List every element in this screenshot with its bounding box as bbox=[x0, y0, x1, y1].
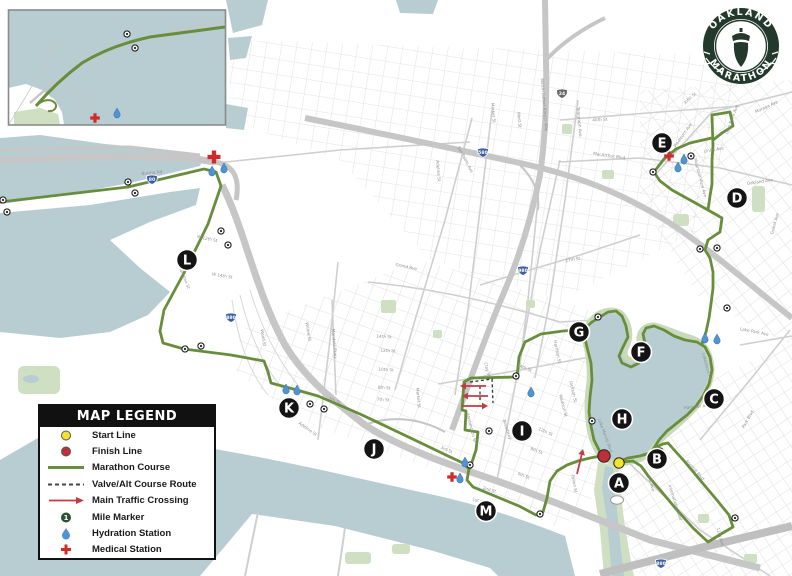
course-point-marker-D: D bbox=[727, 188, 748, 209]
mile-marker bbox=[589, 418, 595, 424]
street-label: 12th St bbox=[380, 348, 396, 354]
legend-title: MAP LEGEND bbox=[40, 406, 214, 427]
street-label: 14th St bbox=[376, 334, 392, 340]
mile-marker bbox=[732, 515, 738, 521]
mile-marker bbox=[4, 209, 10, 215]
mile-marker-dot bbox=[699, 248, 701, 250]
letter-label: K bbox=[284, 401, 295, 416]
mile-marker-dot bbox=[126, 33, 128, 35]
letter-label: M bbox=[480, 504, 493, 519]
hydration-droplet-icon bbox=[40, 527, 92, 541]
mile-marker bbox=[724, 305, 730, 311]
letter-label: J bbox=[371, 442, 377, 457]
finish-line-marker bbox=[598, 450, 610, 462]
mile-marker bbox=[321, 406, 327, 412]
course-point-marker-E: E bbox=[652, 133, 673, 154]
mile-marker bbox=[714, 245, 720, 251]
shield-number: 80 bbox=[149, 177, 155, 183]
mile-marker-dot bbox=[690, 155, 692, 157]
legend-item-medical-station: Medical Station bbox=[40, 542, 214, 558]
course-line-icon bbox=[40, 461, 92, 474]
legend-item-hydration-station: Hydration Station bbox=[40, 525, 214, 541]
mile-marker-dot bbox=[469, 464, 471, 466]
course-point-marker-I: I bbox=[512, 421, 533, 442]
course-point-marker-J: J bbox=[364, 439, 385, 460]
mile-marker-dot bbox=[184, 348, 186, 350]
mile-marker bbox=[650, 169, 656, 175]
course-point-marker-K: K bbox=[279, 398, 300, 419]
mile-marker bbox=[125, 179, 131, 185]
mile-marker bbox=[132, 45, 138, 51]
mile-marker-dot bbox=[2, 199, 4, 201]
marathon-map-page: 8088058098024880 Burma RdMaritime StW 14… bbox=[0, 0, 792, 576]
letter-label: H bbox=[617, 412, 628, 427]
course-point-marker-F: F bbox=[631, 342, 652, 363]
map-legend: MAP LEGEND Start Line Finish Line Marath… bbox=[38, 404, 216, 560]
letter-label: C bbox=[709, 392, 719, 407]
mile-marker bbox=[182, 346, 188, 352]
svg-text:1: 1 bbox=[64, 514, 69, 522]
course-point-marker-C: C bbox=[704, 389, 725, 410]
mile-marker-dot bbox=[488, 430, 490, 432]
street-label: 40th St bbox=[592, 117, 608, 123]
traffic-arrow-icon bbox=[40, 494, 92, 507]
mile-marker-dot bbox=[220, 230, 222, 232]
mile-marker-dot bbox=[227, 244, 229, 246]
mile-marker-dot bbox=[134, 47, 136, 49]
start-line-icon bbox=[40, 429, 92, 442]
mile-marker-dot bbox=[539, 513, 541, 515]
street-label: 7th St bbox=[377, 397, 390, 403]
highway-shield: 580 bbox=[478, 148, 489, 157]
highway-shield: 980 bbox=[518, 266, 529, 275]
mile-marker bbox=[537, 511, 543, 517]
course-point-marker-G: G bbox=[569, 322, 590, 343]
dashed-route-icon bbox=[40, 478, 92, 491]
letter-label: D bbox=[732, 191, 743, 206]
letter-label: L bbox=[183, 253, 191, 268]
shield-number: 880 bbox=[226, 315, 236, 321]
letter-label: F bbox=[637, 345, 646, 360]
mile-marker-icon: 1 bbox=[40, 511, 92, 524]
highway-shield: 880 bbox=[656, 559, 667, 568]
course-point-marker-A: A bbox=[609, 473, 630, 494]
start-line-marker bbox=[614, 458, 624, 468]
street-label: 10th St bbox=[378, 367, 394, 373]
mile-marker-dot bbox=[323, 408, 325, 410]
mile-marker-dot bbox=[200, 345, 202, 347]
mile-marker-dot bbox=[309, 403, 311, 405]
course-point-marker-H: H bbox=[612, 409, 633, 430]
mile-marker bbox=[513, 373, 519, 379]
highway-shield: 880 bbox=[226, 313, 237, 322]
mile-marker bbox=[697, 246, 703, 252]
shield-number: 980 bbox=[518, 268, 528, 274]
legend-item-valve-route: Valve/Alt Course Route bbox=[40, 476, 214, 492]
mile-marker bbox=[688, 153, 694, 159]
legend-item-mile-marker: 1 Mile Marker bbox=[40, 509, 214, 525]
mile-marker bbox=[486, 428, 492, 434]
mile-marker bbox=[0, 197, 6, 203]
finish-line-icon bbox=[40, 445, 92, 458]
course-point-marker-M: M bbox=[476, 501, 497, 522]
mile-marker bbox=[307, 401, 313, 407]
mile-marker-dot bbox=[726, 307, 728, 309]
shield-number: 24 bbox=[559, 91, 565, 97]
letter-label: I bbox=[520, 424, 525, 439]
course-point-marker-L: L bbox=[177, 250, 198, 271]
letter-label: G bbox=[574, 325, 585, 340]
mile-marker bbox=[124, 31, 130, 37]
letter-label: B bbox=[652, 452, 662, 467]
course-point-marker-B: B bbox=[647, 449, 668, 470]
medical-cross-icon bbox=[40, 543, 92, 556]
mile-marker-dot bbox=[591, 420, 593, 422]
legend-item-marathon-course: Marathon Course bbox=[40, 460, 214, 476]
mile-marker bbox=[218, 228, 224, 234]
mile-marker-dot bbox=[716, 247, 718, 249]
mile-marker-dot bbox=[127, 181, 129, 183]
legend-item-finish-line: Finish Line bbox=[40, 443, 214, 459]
mile-marker bbox=[198, 343, 204, 349]
mile-marker-dot bbox=[734, 517, 736, 519]
mile-marker bbox=[225, 242, 231, 248]
mile-marker-dot bbox=[134, 192, 136, 194]
mile-marker-dot bbox=[515, 375, 517, 377]
shield-number: 580 bbox=[478, 150, 488, 156]
shield-number: 880 bbox=[656, 561, 666, 567]
letter-label: E bbox=[658, 136, 667, 151]
mile-marker bbox=[132, 190, 138, 196]
mile-marker-dot bbox=[652, 171, 654, 173]
legend-item-traffic-crossing: Main Traffic Crossing bbox=[40, 493, 214, 509]
letter-label: A bbox=[614, 476, 624, 491]
oakland-marathon-logo: OAKLAND MARATHON bbox=[703, 7, 779, 84]
mile-marker-dot bbox=[6, 211, 8, 213]
street-label: 8th St bbox=[378, 385, 391, 391]
legend-item-start-line: Start Line bbox=[40, 427, 214, 443]
mile-marker-dot bbox=[597, 316, 599, 318]
mile-marker bbox=[595, 314, 601, 320]
